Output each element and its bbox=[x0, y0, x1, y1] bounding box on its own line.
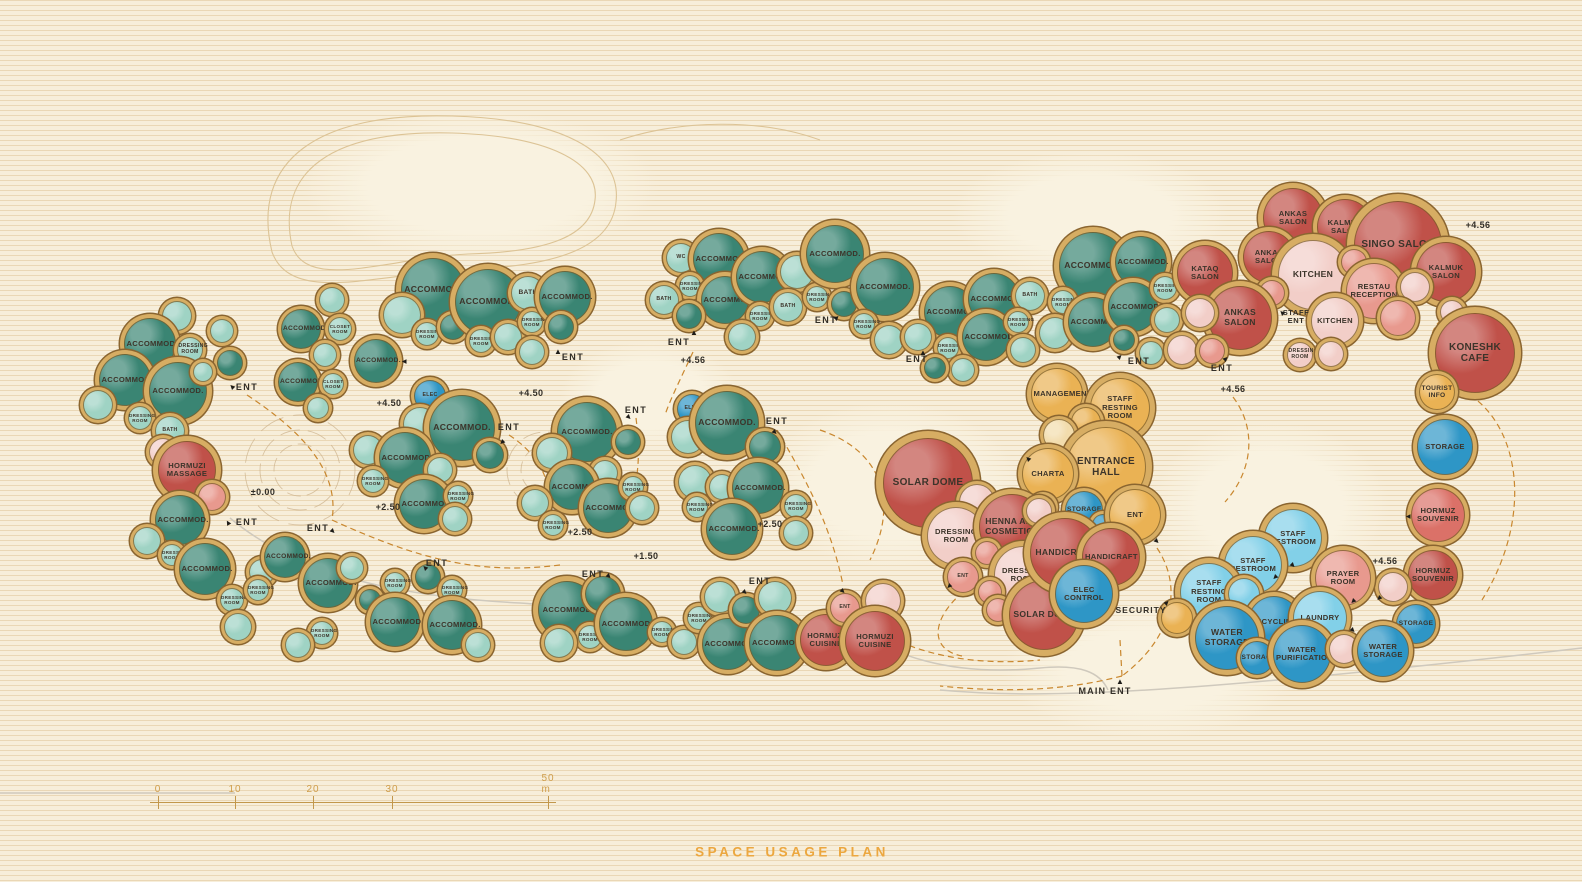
entrance-arrow-icon: ▲ bbox=[327, 526, 339, 538]
dome-bath: BATH bbox=[1015, 281, 1045, 311]
dome-accommod: ACCOMMOD. bbox=[281, 309, 321, 349]
dome-label: ACCOMMOD. bbox=[266, 553, 304, 560]
dome-satellite bbox=[536, 437, 568, 469]
dome-satellite bbox=[465, 632, 491, 658]
dome-satellite bbox=[1039, 317, 1071, 349]
dome-hormuzi-cuisine: HORMUZI CUISINE bbox=[845, 611, 905, 671]
dome-label: DRESSING ROOM bbox=[688, 613, 710, 623]
dome-dressing-room: DRESSING ROOM bbox=[1007, 311, 1029, 333]
dome-label: RECYCLING bbox=[1251, 618, 1298, 627]
dome-label: STORAGE bbox=[1242, 654, 1273, 661]
dome-label: DRESSING ROOM bbox=[1289, 349, 1312, 361]
dome-satellite bbox=[1154, 307, 1180, 333]
entrance-label: ENT bbox=[625, 405, 647, 415]
dome-label: DRESSING ROOM bbox=[807, 292, 827, 302]
dome-satellite bbox=[521, 489, 549, 517]
dome-label: DRESSING ROOM bbox=[938, 343, 958, 353]
dome-label: ACCOMMOD bbox=[602, 620, 651, 629]
dome-label: DRESSING ROOM bbox=[579, 632, 601, 642]
dome-satellite bbox=[676, 303, 702, 329]
dome-label: ACCOMMOD. bbox=[382, 454, 429, 463]
dome-label: ACCOMMOD. bbox=[1071, 318, 1116, 327]
dome-accommod: ACCOMMOD. bbox=[856, 258, 914, 316]
dome-kitchen: KITCHEN bbox=[1311, 297, 1359, 345]
dome-label: KATAQ SALON bbox=[1180, 265, 1230, 282]
dome-dressing-room: DRESSING ROOM bbox=[441, 579, 463, 601]
dome-label: ACCOMMOD. bbox=[927, 308, 974, 317]
dome-label: ACCOMMOD. bbox=[698, 418, 756, 428]
dome-storage: STORAGE bbox=[1417, 419, 1473, 475]
dome-label: KITCHEN bbox=[1282, 270, 1345, 280]
elevation-label: ±0.00 bbox=[251, 487, 275, 497]
dome-dressing-room: DRESSING ROOM bbox=[853, 313, 875, 335]
dome-label: STAFF RESTING ROOM bbox=[1093, 395, 1147, 421]
dome-satellite bbox=[442, 506, 468, 532]
dome-satellite bbox=[217, 350, 243, 376]
dome-satellite bbox=[904, 323, 932, 351]
dome-satellite bbox=[1185, 298, 1215, 328]
dome-satellite bbox=[224, 613, 252, 641]
dome-label: STORAGE bbox=[1398, 620, 1434, 627]
entrance-arrow-icon: ▲ bbox=[1114, 351, 1126, 363]
dome-hormuz-souvenir: HORMUZ SOUVENIR bbox=[1411, 488, 1465, 542]
dome-label: WATER STORAGE bbox=[1360, 643, 1407, 660]
dome-dressing-room: DRESSING ROOM bbox=[542, 514, 564, 536]
dome-accommod: ACCOMMOD bbox=[599, 597, 653, 651]
dome-satellite bbox=[1380, 300, 1416, 336]
dome-satellite bbox=[313, 343, 337, 367]
dome-dressing-room: DRESSING ROOM bbox=[1287, 342, 1313, 368]
dome-label: ACCOMMOD. bbox=[102, 376, 149, 385]
dome-satellite bbox=[732, 596, 760, 624]
dome-label: ACCOMMOD. bbox=[152, 387, 204, 396]
security-label: SECURITY bbox=[1116, 605, 1167, 615]
elevation-label: +4.50 bbox=[519, 388, 544, 398]
dome-satellite bbox=[285, 632, 311, 658]
dome-bath: BATH bbox=[649, 285, 679, 315]
dome-dressing-room: DRESSING ROOM bbox=[447, 485, 469, 507]
dome-storage: STORAGE bbox=[1240, 641, 1274, 675]
dome-closet-room: CLOSET ROOM bbox=[322, 373, 344, 395]
dome-label: DRESSING ROOM bbox=[311, 628, 333, 638]
dome-label: STORAGE bbox=[1420, 443, 1470, 452]
dome-accommod: ACCOMMOD. bbox=[155, 495, 205, 545]
dome-satellite bbox=[629, 495, 655, 521]
dome-satellite bbox=[519, 339, 545, 365]
dome-label: ACCOMMOD bbox=[541, 606, 593, 615]
dome-dressing-room: DRESSING ROOM bbox=[177, 337, 203, 363]
dome-label: STORAGE bbox=[1067, 506, 1101, 513]
dome-dressing-room: DRESSING ROOM bbox=[521, 311, 543, 333]
entrance-arrow-icon: ▲ bbox=[1151, 536, 1163, 548]
dome-satellite bbox=[1026, 498, 1052, 524]
main-entrance-label: MAIN ENT bbox=[1078, 686, 1131, 696]
scale-bar-tick bbox=[392, 796, 393, 809]
dome-satellite bbox=[1139, 341, 1163, 365]
dome-satellite bbox=[1161, 602, 1193, 634]
dome-dressing-room: DRESSING ROOM bbox=[806, 286, 828, 308]
entrance-arrow-icon: ▲ bbox=[623, 412, 635, 424]
dome-satellite bbox=[340, 556, 364, 580]
entrance-label: ENT bbox=[1211, 363, 1233, 373]
entrance-label: ENT bbox=[562, 352, 584, 362]
entrance-label: ENT bbox=[498, 422, 520, 432]
dome-label: ACCOMMOD bbox=[705, 640, 752, 649]
dome-label: DRESSING ROOM bbox=[470, 336, 492, 346]
dome-accommod: ACCOMMOD. bbox=[749, 615, 805, 671]
dome-satellite bbox=[83, 390, 113, 420]
dome-label: BATH bbox=[651, 297, 678, 303]
dome-label: ACCOMMOD. bbox=[709, 525, 756, 534]
dome-label: DRESSING ROOM bbox=[687, 502, 707, 512]
dome-label: DRESSING ROOM bbox=[785, 501, 807, 511]
elevation-label: +4.56 bbox=[681, 355, 706, 365]
dome-label: ACCOMMOD. bbox=[306, 579, 351, 588]
dome-label: ACCOMMOD. bbox=[430, 621, 475, 630]
dome-label: ACCOMMOD. bbox=[542, 293, 589, 302]
dome-label: DRESSING ROOM bbox=[522, 317, 542, 327]
sand-clearing bbox=[300, 110, 660, 260]
dome-satellite bbox=[758, 581, 792, 615]
dome-label: BATH bbox=[1017, 293, 1044, 299]
dome-label: ENT bbox=[832, 605, 859, 611]
dome-label: ELEC CONTROL bbox=[1058, 586, 1110, 603]
dome-label: ENT bbox=[949, 574, 978, 580]
dome-satellite bbox=[1329, 634, 1359, 664]
dome-label: ACCOMMOD. bbox=[586, 504, 631, 513]
dome-dressing-room: DRESSING ROOM bbox=[937, 337, 959, 359]
dome-satellite bbox=[193, 362, 213, 382]
dome-satellite bbox=[975, 541, 999, 565]
dome-accommod: ACCOMMOD. bbox=[179, 543, 231, 595]
dome-wc: WC bbox=[666, 243, 696, 273]
dome-satellite bbox=[986, 598, 1010, 622]
dome-dressing-room: DRESSING ROOM bbox=[310, 621, 334, 645]
elevation-label: +1.50 bbox=[634, 551, 659, 561]
elevation-label: +4.56 bbox=[1466, 220, 1491, 230]
entrance-arrow-icon: ▲ bbox=[226, 381, 238, 393]
scale-bar-label: 20 bbox=[306, 784, 319, 795]
dome-accommod: ACCOMMOD. bbox=[806, 225, 864, 283]
dome-satellite bbox=[951, 358, 975, 382]
elevation-label: +2.50 bbox=[758, 519, 783, 529]
dome-label: CHARTA bbox=[1025, 470, 1072, 479]
dome-label: ACCOMMOD. bbox=[433, 423, 492, 433]
dome-label: DRESSING ROOM bbox=[930, 528, 982, 545]
dome-label: DRESSING ROOM bbox=[416, 329, 438, 339]
dome-label: ACCOMMOD. bbox=[283, 325, 319, 332]
dome-label: DRESSING ROOM bbox=[680, 281, 700, 291]
entrance-arrow-icon: ▲ bbox=[554, 347, 562, 356]
dome-label: TOURIST INFO bbox=[1421, 385, 1453, 400]
scale-bar-label: 50 m bbox=[541, 773, 554, 795]
dome-label: ACCOMMOD. bbox=[735, 484, 782, 493]
entrance-label: ENT bbox=[236, 517, 258, 527]
scale-bar-tick bbox=[235, 796, 236, 809]
elevation-label: +2.50 bbox=[376, 502, 401, 512]
dome-label: ACCOMMOD. bbox=[752, 639, 802, 648]
dome-label: DRESSING ROOM bbox=[385, 578, 405, 588]
dome-satellite bbox=[415, 564, 441, 590]
dome-satellite bbox=[924, 357, 946, 379]
dome-accommod: ACCOMMOD. bbox=[264, 536, 306, 578]
dome-elec-control: ELEC CONTROL bbox=[1055, 565, 1113, 623]
dome-label: ACCOMMOD. bbox=[356, 357, 396, 364]
dome-label: DRESSING ROOM bbox=[1154, 283, 1176, 293]
elevation-label: +2.50 bbox=[568, 527, 593, 537]
dome-satellite bbox=[874, 325, 904, 355]
dome-dressing-room: DRESSING ROOM bbox=[469, 329, 493, 353]
entrance-label: ENT bbox=[668, 337, 690, 347]
dome-satellite bbox=[198, 483, 226, 511]
dome-satellite bbox=[133, 527, 161, 555]
dome-label: ACCOMMOD. bbox=[560, 428, 614, 437]
dome-satellite bbox=[494, 323, 522, 351]
dome-label: ACCOMMOD. bbox=[1111, 303, 1156, 312]
entrance-label: ENT bbox=[815, 315, 837, 325]
dome-satellite bbox=[671, 629, 697, 655]
dome-label: PRAYER ROOM bbox=[1318, 570, 1368, 587]
dome-dressing-room: DRESSING ROOM bbox=[578, 625, 602, 649]
scale-bar-label: 30 bbox=[385, 784, 398, 795]
dome-label: DRESSING ROOM bbox=[543, 520, 563, 530]
dome-label: ACCOMMOD. bbox=[552, 483, 593, 492]
dome-accommod: ACCOMMOD bbox=[702, 618, 754, 670]
dome-label: KITCHEN bbox=[1314, 317, 1357, 326]
dome-label: ACCOMMOD. bbox=[127, 340, 174, 349]
dome-label: ACCOMMOD. bbox=[182, 565, 229, 574]
dome-tourist-info: TOURIST INFO bbox=[1419, 374, 1455, 410]
dome-water-purification: WATER PURIFICATION bbox=[1273, 625, 1331, 683]
entrance-label: ENT bbox=[766, 416, 788, 426]
dome-label: ENT bbox=[1112, 511, 1159, 520]
dome-label: HANDICRAFT bbox=[1085, 553, 1137, 562]
dome-label: CLOSET ROOM bbox=[329, 324, 351, 334]
dome-label: DRESSING ROOM bbox=[652, 627, 672, 637]
dome-satellite bbox=[319, 287, 345, 313]
dome-label: HORMUZ SOUVENIR bbox=[1414, 507, 1463, 524]
dome-satellite bbox=[615, 429, 641, 455]
dome-label: BATH bbox=[157, 428, 184, 434]
dome-accommod: ACCOMMOD. bbox=[354, 339, 398, 383]
dome-label: ACCOMMOD. bbox=[739, 273, 786, 282]
entrance-arrow-icon: ▲ bbox=[399, 358, 408, 366]
dome-label: DRESSING ROOM bbox=[854, 319, 874, 329]
dome-dressing-room: DRESSING ROOM bbox=[415, 322, 439, 346]
dome-label: ACCOMMOD. bbox=[280, 378, 316, 385]
dome-satellite bbox=[1010, 337, 1036, 363]
dome-label: MANAGEMENT bbox=[1034, 390, 1081, 399]
dome-label: BATH bbox=[775, 304, 802, 310]
dome-label: ACCOMMOD. bbox=[809, 250, 861, 259]
scale-bar-label: 0 bbox=[155, 784, 162, 795]
entrance-arrow-icon: ▲ bbox=[1116, 677, 1124, 686]
plan-title: SPACE USAGE PLAN bbox=[695, 845, 889, 860]
dome-dressing-room: DRESSING ROOM bbox=[128, 406, 152, 430]
dome-label: DRESSING ROOM bbox=[1052, 297, 1074, 307]
decor-layer bbox=[0, 0, 1582, 882]
dome-dressing-room: DRESSING ROOM bbox=[784, 494, 808, 518]
dome-satellite bbox=[783, 520, 809, 546]
dome-dressing-room: DRESSING ROOM bbox=[749, 305, 771, 327]
dome-label: HORMUZ SOUVENIR bbox=[1411, 567, 1456, 584]
dome-label: DRESSING ROOM bbox=[129, 413, 151, 423]
dome-accommod: ACCOMMOD. bbox=[370, 597, 420, 647]
dome-label: DRESSING ROOM bbox=[623, 482, 643, 492]
dome-label: ELEC bbox=[416, 393, 445, 399]
dome-satellite bbox=[1199, 338, 1225, 364]
dome-dressing-room: DRESSING ROOM bbox=[247, 579, 269, 601]
dome-satellite bbox=[548, 314, 574, 340]
dome-label: ENTRANCE HALL bbox=[1070, 456, 1142, 478]
dome-bath: BATH bbox=[773, 292, 803, 322]
dome-satellite bbox=[728, 323, 756, 351]
dome-label: ACCOMMOD. bbox=[373, 618, 418, 627]
entrance-label: ENT bbox=[307, 523, 329, 533]
dome-label: DRESSING ROOM bbox=[248, 585, 268, 595]
entrance-arrow-icon: ▲ bbox=[1276, 307, 1288, 319]
elevation-label: +4.56 bbox=[1221, 384, 1246, 394]
dome-accommod: ACCOMMOD. bbox=[706, 503, 758, 555]
dome-charta: CHARTA bbox=[1022, 448, 1074, 500]
dome-label: STAFF RESTROOM bbox=[1267, 530, 1319, 547]
dome-label: SOLAR DOME bbox=[888, 477, 969, 488]
dome-dressing-room: DRESSING ROOM bbox=[1153, 276, 1177, 300]
dome-label: HORMUZI CUISINE bbox=[848, 633, 902, 650]
dome-satellite bbox=[476, 441, 504, 469]
dome-dressing-room: DRESSING ROOM bbox=[361, 469, 385, 493]
entrance-arrow-icon: ▲ bbox=[222, 517, 233, 529]
elevation-label: +4.56 bbox=[1373, 556, 1398, 566]
dome-label: ANKAS SALON bbox=[1211, 308, 1269, 327]
dome-accommod: ACCOMMOD. bbox=[278, 362, 318, 402]
elevation-label: +4.50 bbox=[377, 398, 402, 408]
dome-accommod: ACCOMMOD. bbox=[1108, 282, 1158, 332]
dome-label: ACCOMMOD. bbox=[158, 516, 203, 525]
dome-satellite bbox=[678, 465, 712, 499]
dome-satellite bbox=[749, 431, 781, 463]
entrance-label: STAFF ENT bbox=[1283, 309, 1310, 326]
dome-label: ACCOMMOD. bbox=[965, 333, 1008, 342]
dome-satellite bbox=[1378, 572, 1408, 602]
dome-label: ACCOMMOD. bbox=[459, 297, 518, 307]
entrance-label: ENT bbox=[236, 382, 258, 392]
dome-label: ACCOMMOD. bbox=[971, 295, 1018, 304]
dome-label: ACCOMMOD. bbox=[859, 283, 911, 292]
dome-satellite bbox=[544, 628, 574, 658]
dome-satellite bbox=[1167, 335, 1197, 365]
dome-satellite bbox=[831, 291, 857, 317]
scale-bar-tick bbox=[313, 796, 314, 809]
dome-label: DRESSING ROOM bbox=[221, 595, 243, 605]
scale-bar-tick bbox=[548, 796, 549, 809]
space-usage-plan-canvas: ACCOMMOD.DRESSING ROOMACCOMMOD.ACCOMMOD.… bbox=[0, 0, 1582, 882]
dome-label: ACCOMMOD. bbox=[696, 255, 743, 264]
dome-label: ACCOMMOD. bbox=[402, 500, 447, 509]
dome-closet-room: CLOSET ROOM bbox=[328, 317, 352, 341]
entrance-arrow-icon: ▲ bbox=[690, 328, 698, 337]
dome-dressing-room: DRESSING ROOM bbox=[686, 496, 708, 518]
dome-label: DRESSING ROOM bbox=[442, 585, 462, 595]
dome-label: STAFF RESTROOM bbox=[1227, 557, 1279, 574]
dome-water-storage: WATER STORAGE bbox=[1357, 625, 1409, 677]
dome-satellite bbox=[1400, 272, 1430, 302]
dome-label: ANKAS SALON bbox=[1266, 210, 1320, 227]
dome-label: DRESSING ROOM bbox=[162, 550, 182, 560]
dome-dressing-room: DRESSING ROOM bbox=[651, 621, 673, 643]
dome-satellite bbox=[210, 319, 234, 343]
dome-label: DRESSING ROOM bbox=[1008, 317, 1028, 327]
dome-satellite bbox=[1113, 329, 1135, 351]
dome-label: CLOSET ROOM bbox=[323, 379, 343, 389]
dome-label: DRESSING ROOM bbox=[448, 491, 468, 501]
scale-bar-line bbox=[150, 802, 556, 803]
dome-accommod: ACCOMMOD. bbox=[962, 313, 1010, 361]
dome-label: HORMUZI CUISINE bbox=[803, 632, 850, 649]
dome-hormuz-souvenir: HORMUZ SOUVENIR bbox=[1408, 550, 1458, 600]
dome-label: ACCOMMOD. bbox=[1118, 258, 1165, 267]
dome-label: DRESSING ROOM bbox=[362, 476, 384, 486]
dome-satellite bbox=[1043, 419, 1075, 451]
dome-accommod: ACCOMMOD. bbox=[379, 432, 431, 484]
dome-satellite bbox=[307, 397, 329, 419]
dome-dressing-room: DRESSING ROOM bbox=[679, 275, 701, 297]
dome-label: ACCOMMOD. bbox=[704, 296, 747, 305]
dome-label: WATER PURIFICATION bbox=[1276, 646, 1328, 663]
scale-bar-tick bbox=[158, 796, 159, 809]
dome-dressing-room: DRESSING ROOM bbox=[384, 572, 406, 594]
scale-bar-label: 10 bbox=[228, 784, 241, 795]
dome-label: RESTAU RECEPTION bbox=[1349, 283, 1399, 300]
dome-label: KONESHK CAFE bbox=[1439, 342, 1511, 364]
dome-ent: ENT bbox=[947, 561, 979, 593]
dome-label: ACCOMMOD. bbox=[404, 285, 462, 295]
dome-label: LAUNDRY bbox=[1296, 614, 1345, 623]
dome-label: DRESSING ROOM bbox=[750, 311, 770, 321]
dome-dressing-room: DRESSING ROOM bbox=[220, 588, 244, 612]
dome-label: WC bbox=[668, 255, 695, 261]
dome-satellite bbox=[1318, 341, 1344, 367]
dome-label: HORMUZI MASSAGE bbox=[161, 462, 213, 479]
dome-label: DRESSING ROOM bbox=[179, 344, 202, 356]
sand-hatch-texture bbox=[0, 0, 1582, 882]
